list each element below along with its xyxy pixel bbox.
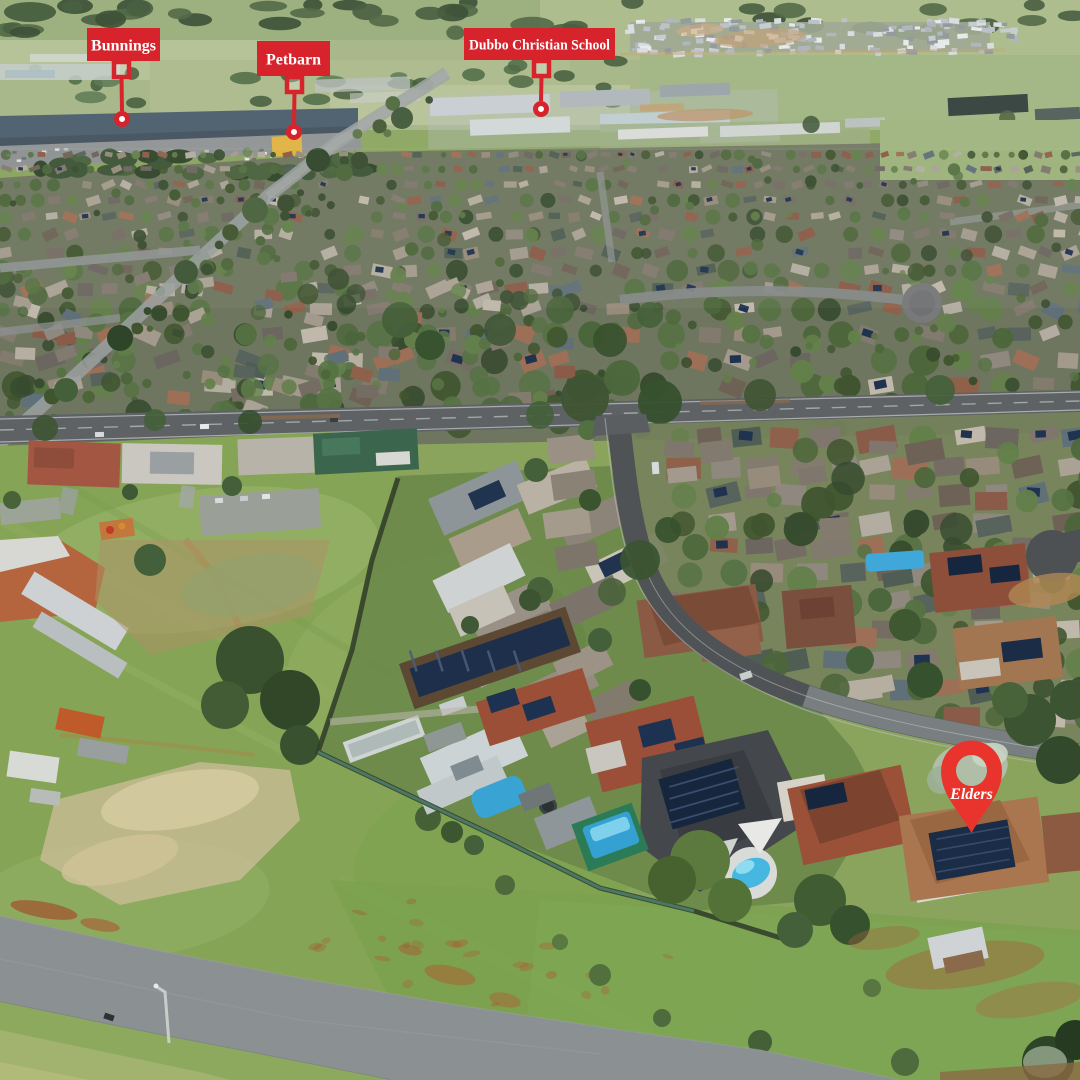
- svg-text:Bunnings: Bunnings: [91, 37, 156, 54]
- svg-text:Petbarn: Petbarn: [266, 51, 321, 68]
- svg-text:Dubbo Christian School: Dubbo Christian School: [469, 37, 610, 53]
- svg-text:Elders: Elders: [949, 786, 993, 803]
